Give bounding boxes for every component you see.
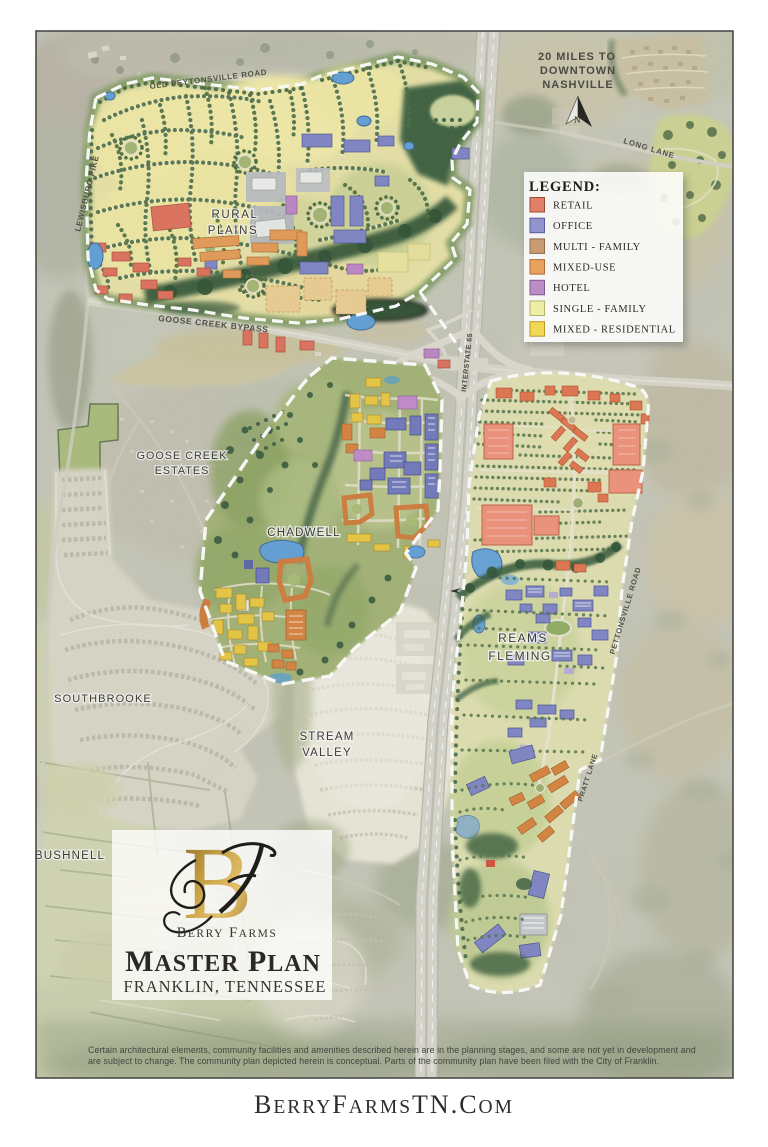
svg-text:BERRY FARMS: BERRY FARMS (177, 925, 278, 941)
svg-text:are subject to change. The com: are subject to change. The community pla… (88, 1056, 659, 1066)
svg-text:HOTEL: HOTEL (553, 283, 590, 294)
svg-text:Certain architectural elements: Certain architectural elements, communit… (88, 1045, 696, 1055)
svg-text:MIXED - RESIDENTIAL: MIXED - RESIDENTIAL (553, 325, 676, 336)
svg-text:FRANKLIN, TENNESSEE: FRANKLIN, TENNESSEE (124, 977, 327, 996)
svg-text:RETAIL: RETAIL (553, 201, 593, 212)
svg-text:SINGLE - FAMILY: SINGLE - FAMILY (553, 304, 647, 315)
svg-text:MULTI - FAMILY: MULTI - FAMILY (553, 242, 641, 253)
svg-text:LEGEND:: LEGEND: (529, 179, 601, 195)
svg-text:OFFICE: OFFICE (553, 221, 593, 232)
svg-text:MIXED-USE: MIXED-USE (553, 263, 616, 274)
